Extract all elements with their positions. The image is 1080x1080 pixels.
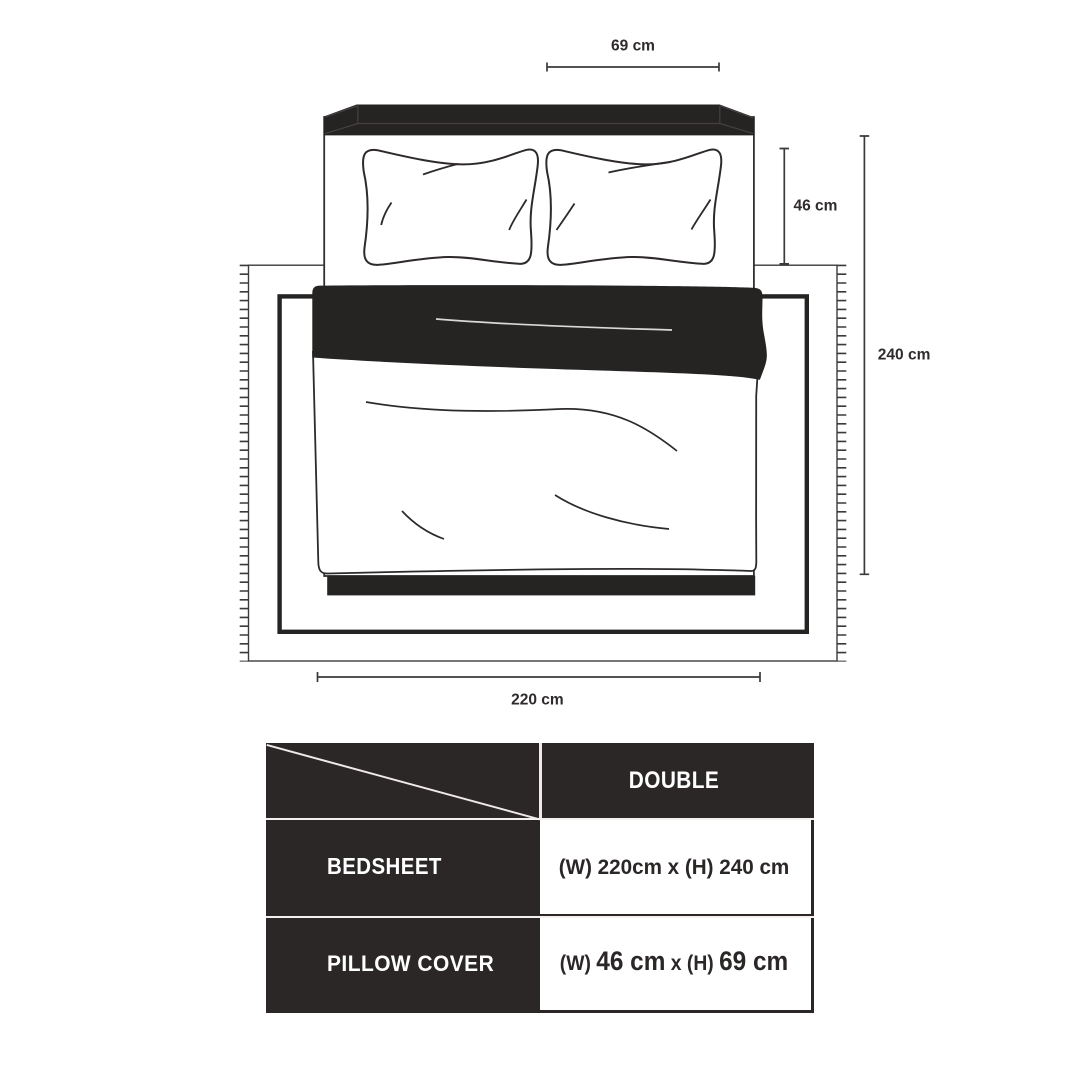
svg-text:46 cm: 46 cm	[794, 197, 838, 214]
svg-text:69 cm: 69 cm	[611, 38, 655, 55]
svg-text:220 cm: 220 cm	[511, 692, 564, 709]
svg-text:240 cm: 240 cm	[878, 347, 931, 364]
